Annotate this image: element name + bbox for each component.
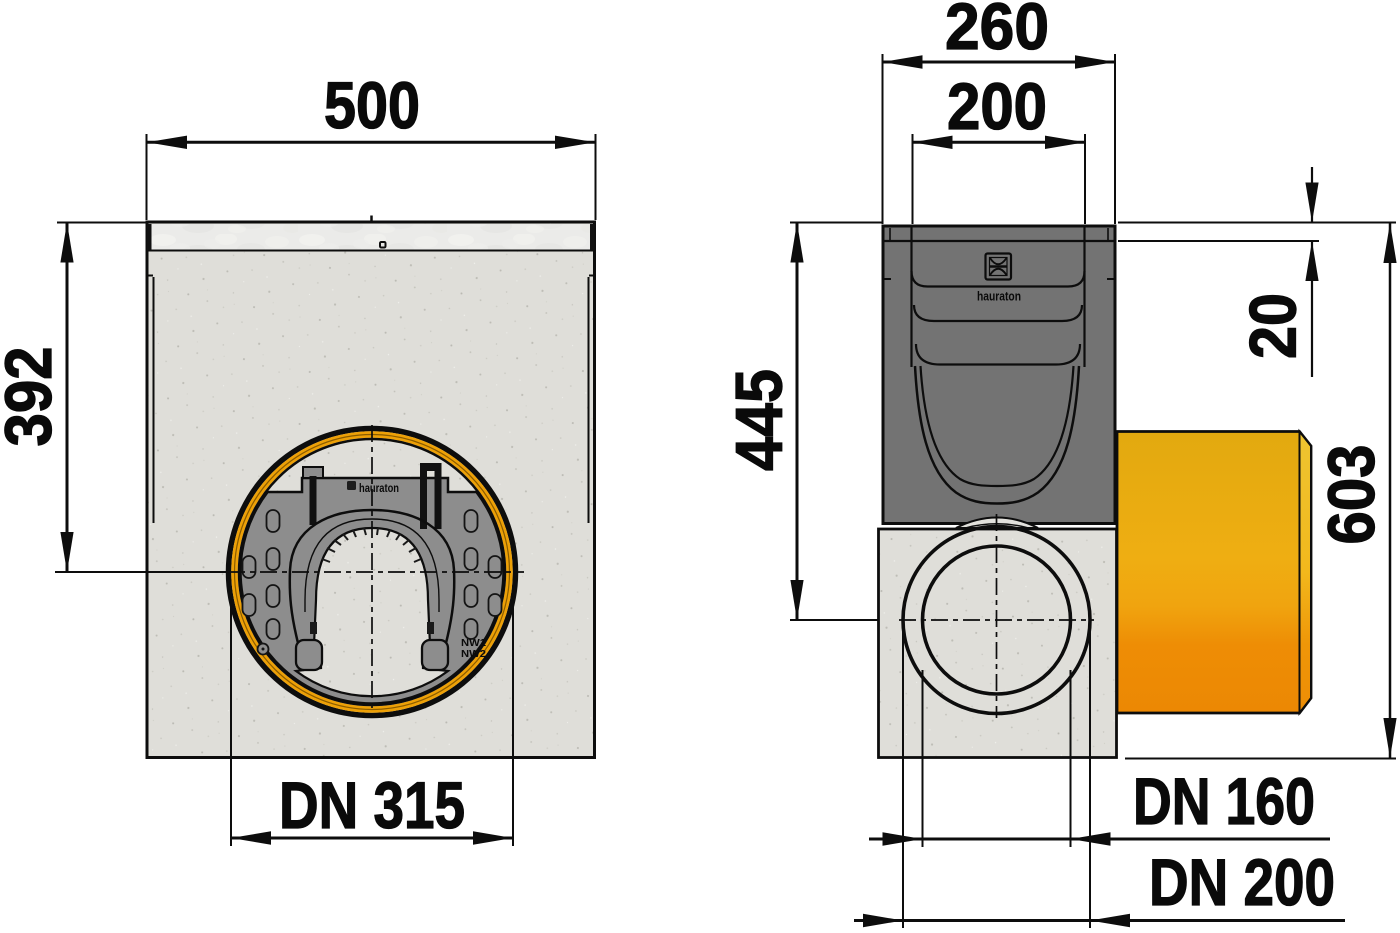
svg-text:NW2: NW2 <box>461 649 486 660</box>
svg-text:20: 20 <box>1236 293 1310 359</box>
svg-text:DN 315: DN 315 <box>279 768 465 842</box>
svg-text:603: 603 <box>1314 445 1388 545</box>
svg-text:445: 445 <box>722 369 796 471</box>
svg-text:DN 200: DN 200 <box>1149 845 1335 919</box>
svg-text:NW1: NW1 <box>461 638 486 649</box>
svg-text:200: 200 <box>947 69 1047 143</box>
svg-text:260: 260 <box>945 0 1049 63</box>
svg-text:hauraton: hauraton <box>359 481 399 495</box>
svg-text:hauraton: hauraton <box>977 290 1021 304</box>
svg-text:DN 160: DN 160 <box>1133 764 1315 838</box>
svg-text:500: 500 <box>324 68 420 142</box>
svg-text:392: 392 <box>0 347 65 447</box>
